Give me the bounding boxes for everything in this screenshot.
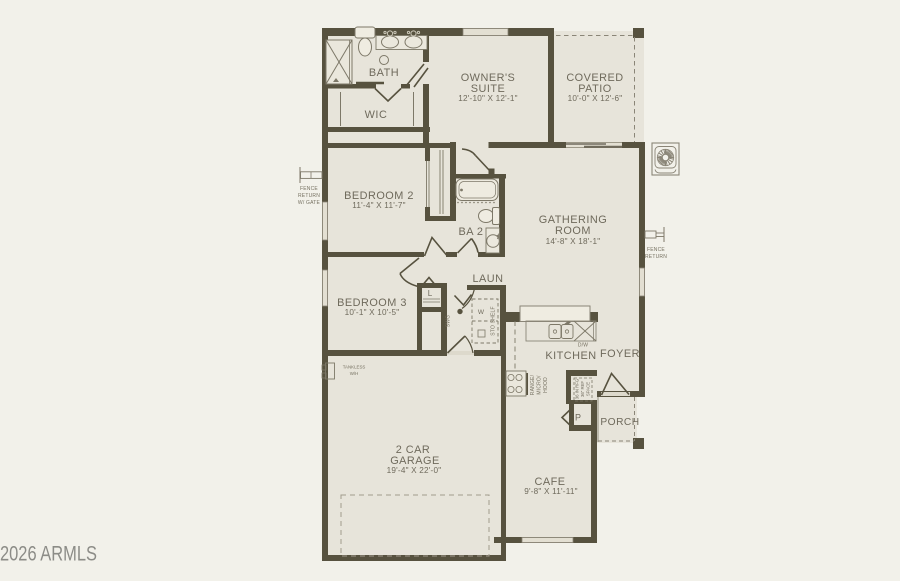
svg-text:L: L: [428, 289, 433, 298]
svg-text:12'-10" X 12'-1": 12'-10" X 12'-1": [458, 94, 517, 103]
svg-text:FOYER: FOYER: [600, 348, 640, 360]
svg-text:W: W: [478, 309, 485, 316]
svg-text:TANKLESS: TANKLESS: [343, 365, 366, 370]
svg-text:RETURN: RETURN: [645, 254, 667, 260]
svg-text:WIC: WIC: [365, 109, 388, 121]
svg-text:SWG: SWG: [446, 315, 452, 328]
svg-text:FENCE: FENCE: [300, 186, 318, 192]
svg-text:PORCH: PORCH: [600, 417, 639, 428]
svg-text:14'-8" X 18'-1": 14'-8" X 18'-1": [546, 237, 601, 246]
svg-text:LAUN: LAUN: [472, 273, 503, 285]
svg-text:10'-1" X 10'-5": 10'-1" X 10'-5": [345, 308, 400, 317]
svg-text:P: P: [575, 413, 581, 423]
svg-text:11'-4" X 11'-7": 11'-4" X 11'-7": [352, 201, 406, 210]
svg-text:HOOD: HOOD: [543, 377, 549, 393]
svg-text:BA 2: BA 2: [458, 226, 483, 238]
svg-text:FENCE: FENCE: [647, 247, 665, 253]
svg-text:RETURN: RETURN: [298, 193, 320, 199]
svg-text:2026 ARMLS: 2026 ARMLS: [0, 543, 97, 566]
svg-text:36" REF: 36" REF: [580, 381, 585, 397]
svg-text:BATH: BATH: [369, 67, 399, 79]
svg-text:D/W: D/W: [578, 343, 588, 349]
svg-text:SPACE: SPACE: [586, 382, 591, 396]
svg-text:19'-4" X 22'-0": 19'-4" X 22'-0": [387, 466, 442, 475]
svg-text:36 IN RFG: 36 IN RFG: [575, 378, 580, 399]
svg-text:W/ GATE: W/ GATE: [298, 200, 321, 206]
svg-text:ROOM: ROOM: [555, 225, 591, 237]
svg-text:MICRO/: MICRO/: [537, 375, 543, 395]
svg-text:RANGE/: RANGE/: [530, 374, 536, 395]
svg-text:KITCHEN: KITCHEN: [545, 350, 596, 362]
svg-text:STO SHELF: STO SHELF: [491, 306, 497, 336]
svg-text:9'-8" X 11'-11": 9'-8" X 11'-11": [524, 487, 578, 496]
svg-text:10'-0" X 12'-6": 10'-0" X 12'-6": [568, 94, 623, 103]
svg-text:W/H: W/H: [350, 371, 359, 376]
